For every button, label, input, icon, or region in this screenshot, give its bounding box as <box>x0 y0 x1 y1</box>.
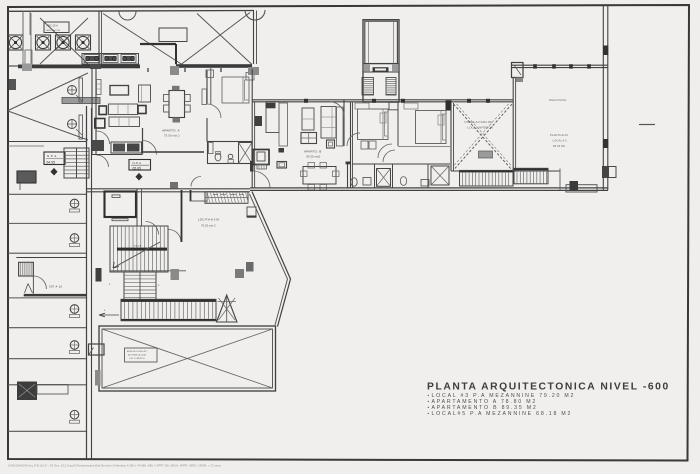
svg-text:PLANTA ARQUITECTONICA NIVEL -6: PLANTA ARQUITECTONICA NIVEL -600 <box>427 382 670 393</box>
svg-text:LOCAL INFERIOR: LOCAL INFERIOR <box>468 126 493 130</box>
svg-text:APARTO. A: APARTO. A <box>162 129 181 133</box>
svg-text:LOCAL#5 P.A MEZANNINE 68.18 M: LOCAL#5 P.A MEZANNINE 68.18 M2 <box>432 411 573 417</box>
svg-text:80.18 M2: 80.18 M2 <box>553 144 565 148</box>
svg-text:CARLOMAGNO Arq. P.B 101-: CARLOMAGNO Arq. P.B 101-D . 2/3 Gzo. 1/1… <box>8 464 222 468</box>
svg-text:B A J A: B A J A <box>134 245 141 248</box>
svg-text:APARTO. B: APARTO. B <box>304 150 321 154</box>
svg-text:64.95: 64.95 <box>47 161 56 165</box>
svg-text:VENTILACION: VENTILACION <box>46 29 61 32</box>
svg-text:LOC P.A # 3 M: LOC P.A # 3 M <box>198 218 219 222</box>
svg-text:DEL COMERCIO: DEL COMERCIO <box>130 358 146 360</box>
svg-text:79.20 mts 2: 79.20 mts 2 <box>201 224 216 228</box>
svg-text:N P A: N P A <box>47 154 57 158</box>
svg-text:ALTURA A LA CAJA: ALTURA A LA CAJA <box>128 354 147 357</box>
svg-text:LOCAL # 5: LOCAL # 5 <box>553 139 568 143</box>
svg-text:DOBLE ALTURA DE: DOBLE ALTURA DE <box>465 120 493 124</box>
svg-text:AREA DE DOBLE ALT.: AREA DE DOBLE ALT. <box>127 350 148 353</box>
svg-text:ABC-10 A: ABC-10 A <box>47 24 59 28</box>
svg-text:307 # 10: 307 # 10 <box>49 284 62 288</box>
svg-text:N.P.A: N.P.A <box>133 161 142 165</box>
svg-text:PLANTA ALTA: PLANTA ALTA <box>550 133 568 137</box>
svg-text:65.65: 65.65 <box>133 166 142 170</box>
svg-text:89.35 mts2: 89.35 mts2 <box>307 155 321 159</box>
svg-text:75.00 mts 2: 75.00 mts 2 <box>164 134 180 138</box>
svg-text:MEZZANINE: MEZZANINE <box>549 98 566 102</box>
